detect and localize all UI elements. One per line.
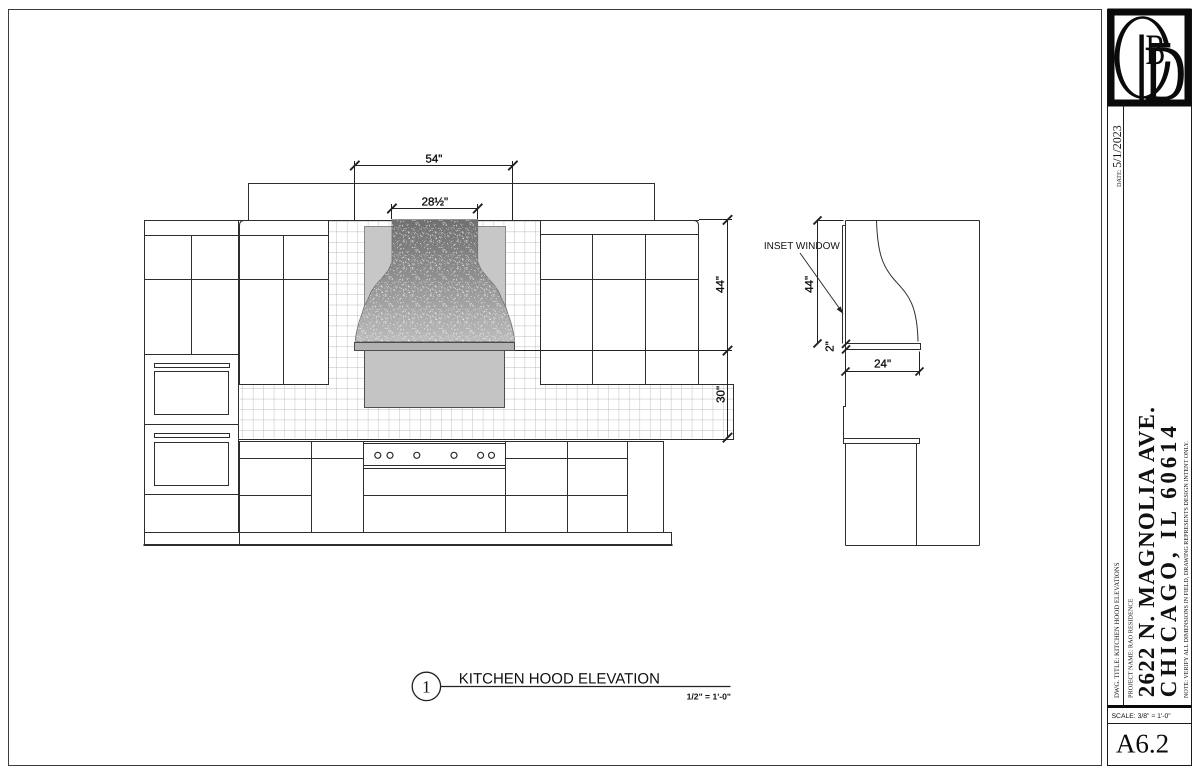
- svg-text:24": 24": [874, 359, 891, 371]
- svg-text:B: B: [1146, 26, 1166, 74]
- svg-text:KITCHEN HOOD ELEVATION: KITCHEN HOOD ELEVATION: [459, 671, 660, 688]
- svg-text:DWG. TITLE: KITCHEN HOOD EL: DWG. TITLE: KITCHEN HOOD ELEVATIONS: [1114, 562, 1121, 698]
- svg-text:SCALE: 3/8" = 1'-0": SCALE: 3/8" = 1'-0": [1112, 713, 1172, 720]
- svg-text:NOTE: VERIFY ALL DIMENSIONS: NOTE: VERIFY ALL DIMENSIONS IN FIELD, DR…: [1183, 441, 1190, 698]
- svg-text:54": 54": [425, 154, 442, 166]
- svg-text:30": 30": [716, 386, 728, 403]
- svg-text:44": 44": [715, 276, 727, 293]
- svg-text:INSET WINDOW: INSET WINDOW: [764, 241, 840, 252]
- svg-text:2": 2": [825, 341, 837, 351]
- svg-text:1: 1: [422, 677, 431, 696]
- svg-text:44": 44": [804, 276, 816, 293]
- svg-text:1/2" = 1'-0": 1/2" = 1'-0": [687, 692, 731, 702]
- svg-text:A6.2: A6.2: [1116, 729, 1169, 759]
- svg-text:28½": 28½": [422, 197, 448, 209]
- svg-text:CHICAGO, IL 60614: CHICAGO, IL 60614: [1156, 422, 1181, 697]
